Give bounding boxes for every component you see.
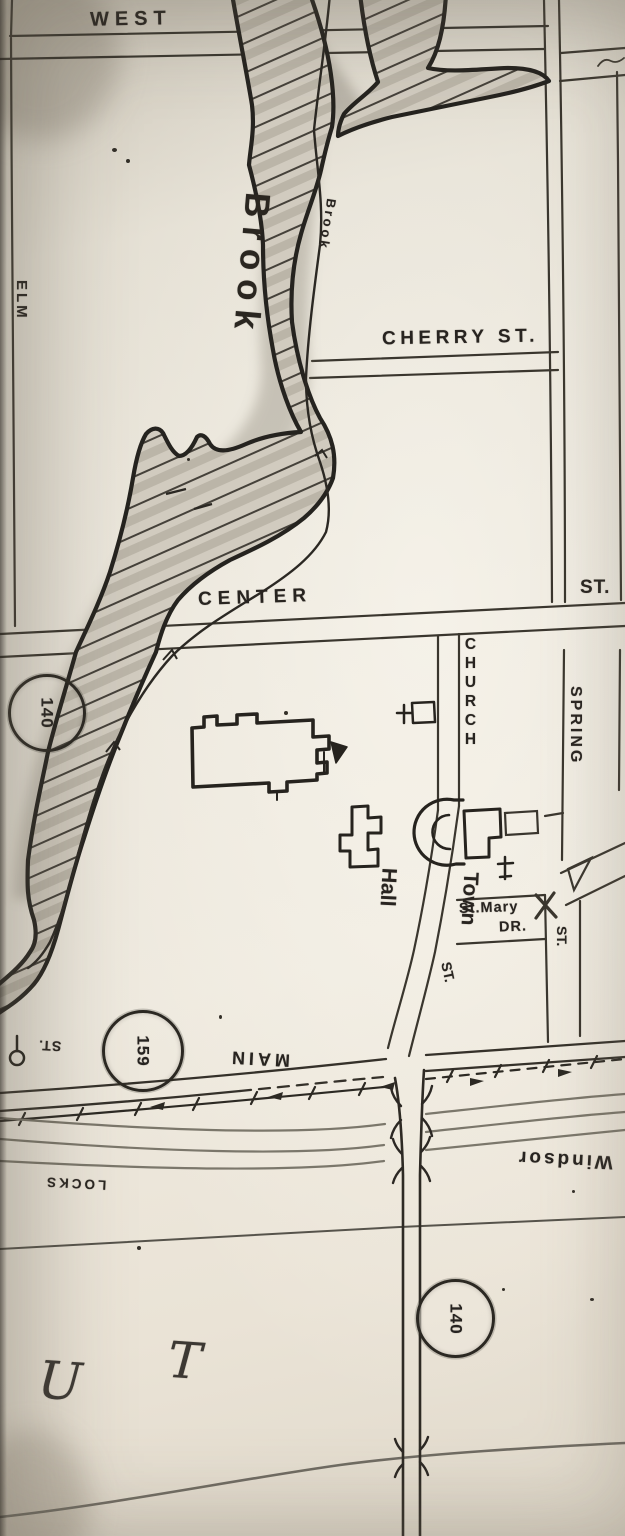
left-st-upside-down-label: ST. [38,1037,62,1054]
street-label-center: CENTER [198,585,313,611]
wavy-stream-bottom [0,1443,625,1517]
street-stmary-right-v [545,895,548,1042]
street-label-main: MAIN [227,1046,290,1070]
photo-edge-shadow [0,0,7,1536]
area-letter-u: U [36,1351,84,1414]
station-lollipop-circle [10,1051,24,1065]
ink-speck [590,1298,594,1301]
street-label-cherry: CHERRY ST. [382,326,539,351]
street-spring-right [619,650,620,790]
brook-main-band [0,0,334,1016]
st-mary-dr-label-line1: St.Mary [459,899,519,917]
main-right-1 [426,1041,625,1055]
wavy-boundary-line [0,1217,625,1249]
street-cherry-upper [312,352,558,361]
block-jog [545,813,563,816]
route-marker-159-text: 159 [133,1035,153,1066]
ink-speck [502,1288,505,1291]
church-symbol [397,702,435,723]
route-marker-140-south: 140 [416,1279,495,1358]
street-cherry-lower [310,370,558,378]
st-mary-dr-label-line2: DR. [499,919,528,936]
town-hall-flag [331,742,347,763]
spring-st-suffix-label: ST. [554,926,570,972]
main-left-2-solid [0,1091,240,1111]
street-topright-v1 [544,0,552,602]
ink-speck [112,148,117,152]
route-marker-140-west-text: 140 [37,697,57,728]
main-left-1 [0,1059,386,1093]
town-hall-line1: Town [452,871,485,974]
block-tab [505,811,538,835]
ink-speck [187,458,190,461]
street-topright-v2 [559,0,565,602]
town-hall-line2: Hall [370,867,403,970]
street-label-spring: SPRING [566,686,584,798]
corner-squiggle [598,58,624,66]
street-label-church: CHURCH [461,636,479,756]
block-corner-stub [11,0,12,36]
street-label-elm: ELM [13,280,30,342]
cruciform-building [340,806,381,867]
map-photo: WEST ELM Brook Brook CHERRY ST. CENTER S… [0,0,625,1536]
main-street-and-railroad [0,1041,625,1517]
area-letter-t: T [166,1331,203,1391]
railroad-right-arrows [470,1069,572,1086]
street-west-right-lower [560,75,625,81]
route-marker-159: 159 [102,1010,184,1092]
route-marker-140-west: 140 [8,674,86,752]
brook [0,0,549,1016]
ink-speck [284,711,288,715]
street-label-west: WEST [90,7,172,31]
triangle-island [568,858,591,890]
right-edge-line [617,72,621,600]
ink-speck [137,1246,141,1250]
street-west-right-upper [561,48,625,53]
rectangular-building [464,809,501,858]
town-hall-building [192,714,329,792]
boundary-label-locks: LOCKS [44,1174,107,1192]
ink-speck [126,159,130,163]
map-artwork [0,0,625,1536]
street-spring-left [562,650,564,860]
ink-speck [572,1190,575,1193]
route-marker-140-south-text: 140 [446,1303,466,1334]
brook-right-branch [338,0,549,136]
bridge-symbols [391,1086,432,1477]
ink-speck [219,1015,222,1019]
street-label-center-st: ST. [580,577,610,599]
